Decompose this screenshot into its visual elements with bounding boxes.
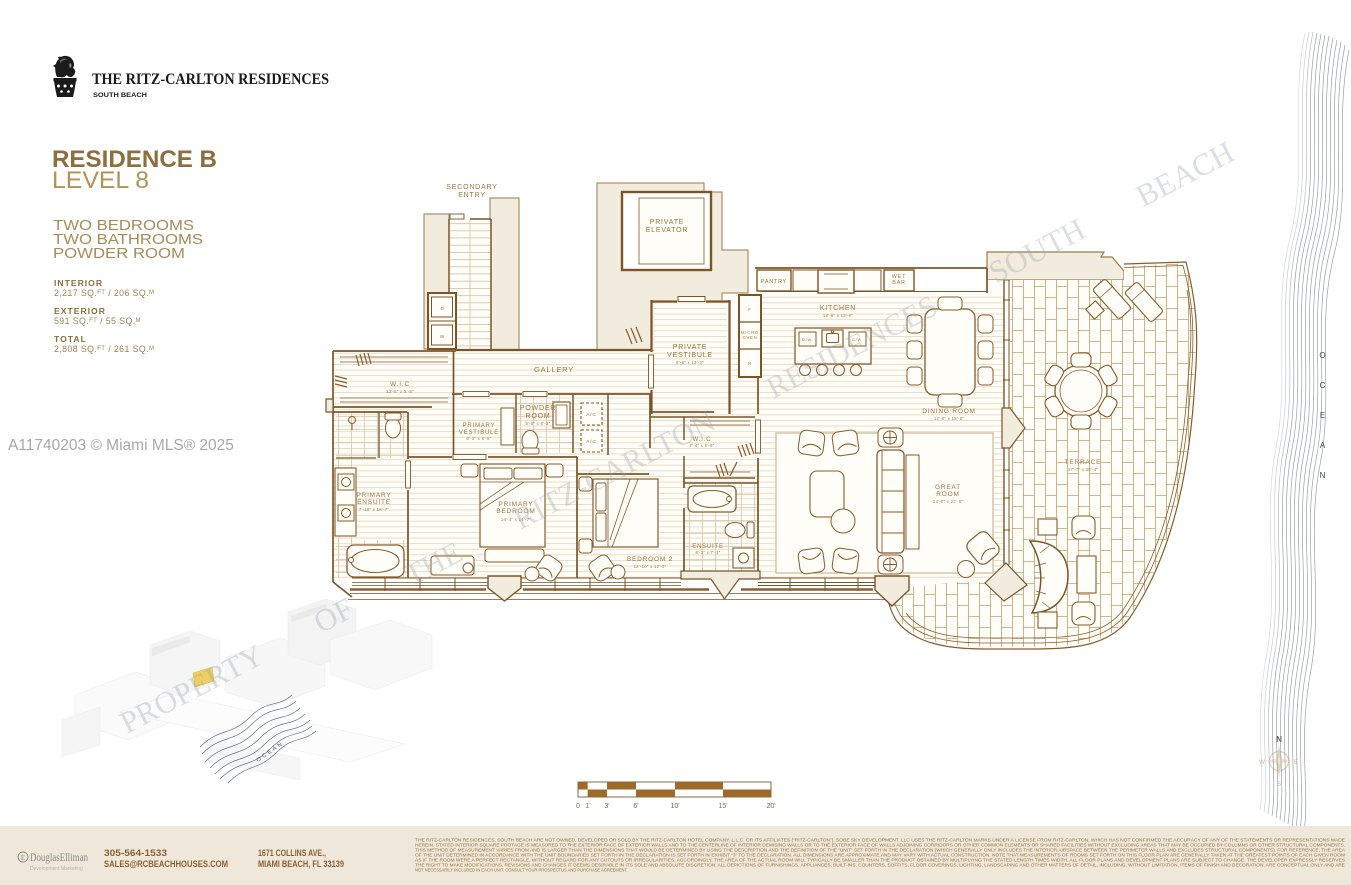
svg-text:POWDER: POWDER [520, 405, 556, 412]
svg-text:Development Marketing: Development Marketing [30, 866, 83, 872]
svg-text:VESTIBULE: VESTIBULE [667, 352, 713, 359]
svg-text:18'-6" x 13'-6": 18'-6" x 13'-6" [823, 313, 853, 318]
svg-text:BAR: BAR [892, 280, 905, 286]
svg-text:C: C [1320, 381, 1327, 390]
svg-text:A/C: A/C [586, 439, 596, 445]
svg-text:DINING ROOM: DINING ROOM [922, 408, 976, 415]
svg-text:ROOM: ROOM [936, 491, 959, 498]
svg-text:D: D [440, 306, 444, 311]
svg-text:R: R [748, 361, 752, 366]
svg-text:ELEVATOR: ELEVATOR [646, 227, 689, 234]
svg-text:THE RITZ-CARLTON RESIDENCES: THE RITZ-CARLTON RESIDENCES [92, 71, 329, 88]
svg-text:TOTAL: TOTAL [54, 334, 87, 344]
svg-text:TERRACE: TERRACE [1065, 459, 1102, 466]
svg-text:2,808 SQ.FT / 261 SQ.M: 2,808 SQ.FT / 261 SQ.M [54, 344, 154, 354]
svg-text:12'-10" x 12'-0": 12'-10" x 12'-0" [634, 564, 667, 569]
svg-text:PRIMARY: PRIMARY [463, 423, 496, 429]
svg-text:13'-5" x 5'-5": 13'-5" x 5'-5" [386, 389, 414, 394]
svg-text:INTERIOR: INTERIOR [54, 278, 103, 288]
svg-text:15': 15' [718, 803, 727, 810]
svg-text:A: A [1320, 441, 1326, 450]
svg-text:2,217 SQ.FT / 206 SQ.M: 2,217 SQ.FT / 206 SQ.M [54, 288, 154, 298]
svg-text:EXTERIOR: EXTERIOR [54, 306, 106, 316]
svg-text:OVEN: OVEN [742, 335, 757, 340]
svg-text:D/W: D/W [802, 337, 812, 342]
svg-text:DouglasElliman: DouglasElliman [30, 852, 88, 864]
svg-text:ENTRY: ENTRY [458, 192, 486, 199]
svg-text:GREAT: GREAT [935, 484, 961, 491]
svg-text:1671 COLLINS AVE.,: 1671 COLLINS AVE., [258, 848, 326, 859]
svg-text:0: 0 [576, 803, 580, 810]
svg-text:LEVEL 8: LEVEL 8 [52, 167, 149, 194]
svg-text:W: W [440, 334, 445, 339]
svg-text:8'-2" x 7'-1": 8'-2" x 7'-1" [696, 550, 721, 555]
svg-text:1': 1' [585, 803, 590, 810]
svg-text:SECONDARY: SECONDARY [446, 184, 497, 191]
svg-text:PRIVATE: PRIVATE [650, 219, 685, 226]
svg-text:ROOM: ROOM [526, 413, 551, 420]
svg-text:N: N [1320, 471, 1327, 480]
svg-text:305-564-1533: 305-564-1533 [104, 848, 167, 859]
svg-text:O: O [1319, 351, 1326, 360]
svg-text:POWDER ROOM: POWDER ROOM [53, 245, 185, 262]
svg-text:7'-10" x 16'-7": 7'-10" x 16'-7" [359, 507, 389, 512]
svg-text:A/C: A/C [586, 412, 596, 418]
svg-text:W: W [1259, 760, 1265, 766]
svg-text:N: N [1276, 735, 1282, 744]
svg-text:E: E [1294, 760, 1298, 766]
svg-text:8'-6" x 13'-3": 8'-6" x 13'-3" [676, 360, 704, 365]
svg-text:A11740203 © Miami MLS® 2025: A11740203 © Miami MLS® 2025 [8, 437, 234, 454]
svg-text:PANTRY: PANTRY [761, 279, 787, 285]
svg-text:E: E [21, 854, 25, 862]
svg-text:SOUTH BEACH: SOUTH BEACH [93, 92, 147, 99]
svg-text:591 SQ.FT / 55 SQ.M: 591 SQ.FT / 55 SQ.M [54, 316, 141, 326]
svg-text:10': 10' [670, 803, 679, 810]
svg-text:12'-0" x 18'-6": 12'-0" x 18'-6" [934, 416, 964, 421]
svg-text:NOT NECESSARILY INCLUDED IN EA: NOT NECESSARILY INCLUDED IN EACH UNIT. C… [415, 868, 628, 873]
svg-text:6'-3" x 8'-8": 6'-3" x 8'-8" [467, 436, 492, 441]
svg-text:6': 6' [633, 803, 638, 810]
svg-text:6'-5" x 6'-3": 6'-5" x 6'-3" [526, 421, 551, 426]
svg-text:W.I.C: W.I.C [390, 381, 410, 388]
svg-text:MIAMI BEACH, FL 33139: MIAMI BEACH, FL 33139 [258, 859, 344, 870]
svg-text:SALES@RCBEACHHOUSES.COM: SALES@RCBEACHHOUSES.COM [104, 859, 228, 870]
svg-text:BEDROOM 2: BEDROOM 2 [627, 556, 673, 563]
svg-text:3': 3' [604, 803, 609, 810]
svg-text:ENSUITE: ENSUITE [357, 499, 391, 506]
svg-text:GALLERY: GALLERY [534, 365, 574, 374]
svg-text:KITCHEN: KITCHEN [820, 305, 856, 312]
svg-text:24'-0" x 23'-6": 24'-0" x 23'-6" [933, 499, 963, 504]
svg-text:17'-7" x 38'-4": 17'-7" x 38'-4" [1068, 467, 1098, 472]
svg-text:PRIMARY: PRIMARY [356, 492, 391, 499]
svg-text:PRIVATE: PRIVATE [673, 344, 708, 351]
svg-text:E: E [1320, 411, 1326, 420]
svg-text:F: F [748, 307, 752, 312]
svg-text:20': 20' [766, 803, 775, 810]
